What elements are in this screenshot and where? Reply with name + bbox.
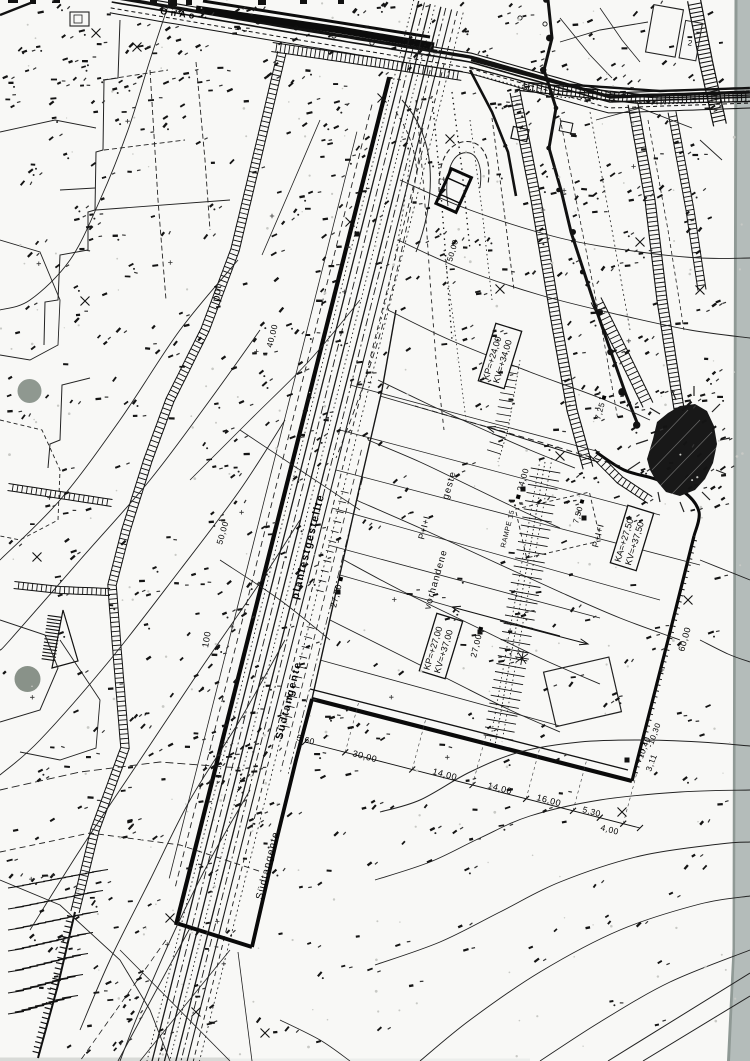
- svg-text:pot: pot: [210, 284, 224, 302]
